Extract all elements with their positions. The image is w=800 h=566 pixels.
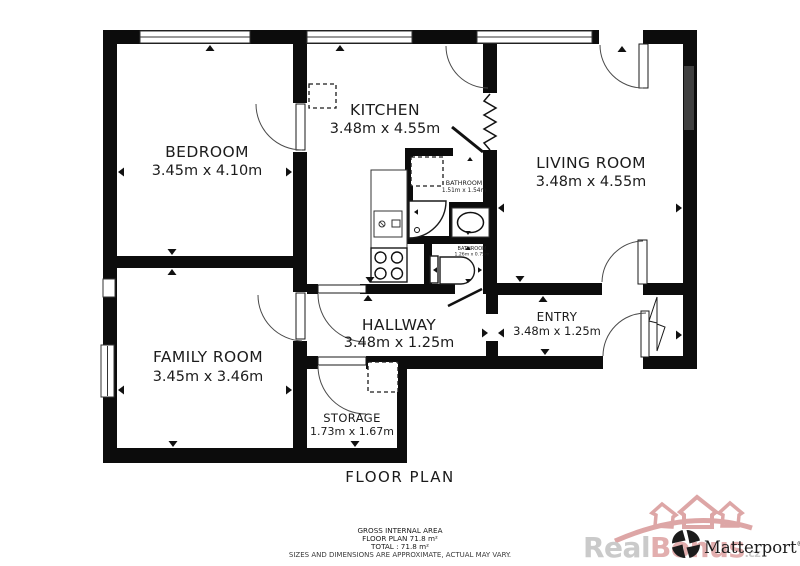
room-dims-storage: 1.73m x 1.67m — [310, 425, 394, 438]
kitchen-counter — [371, 170, 407, 248]
room-label-family-room: FAMILY ROOM — [153, 348, 263, 366]
dimension-arrow — [478, 267, 482, 273]
dimension-arrow — [351, 441, 360, 447]
dashed-fixture — [411, 157, 443, 186]
door-arc — [318, 366, 366, 414]
total-area: TOTAL : 71.8 m² — [370, 542, 429, 551]
room-dims-hallway: 3.48m x 1.25m — [344, 335, 455, 351]
dimension-arrow — [541, 349, 550, 355]
dimension-arrow — [676, 204, 682, 213]
dimension-arrow — [286, 386, 292, 395]
dimension-arrow — [539, 296, 548, 302]
dimension-arrow — [168, 269, 177, 275]
shower-icon — [409, 201, 446, 238]
dimension-arrow — [676, 331, 682, 340]
dimension-arrow — [336, 45, 345, 51]
door-leaf — [296, 104, 305, 150]
dimension-arrow — [498, 329, 504, 338]
dimension-arrow — [482, 329, 488, 338]
room-label-kitchen: KITCHEN — [350, 101, 420, 119]
door-arc — [603, 313, 646, 356]
dimension-arrow — [206, 45, 215, 51]
room-dims-family-room: 3.45m x 3.46m — [153, 369, 264, 385]
room-label-hallway: HALLWAY — [362, 316, 436, 334]
room-dims-bathroom: 1.51m x 1.54m — [442, 188, 487, 194]
room-label-living-room: LIVING ROOM — [536, 154, 646, 172]
door-leaf — [296, 293, 305, 339]
dimension-arrow — [118, 386, 124, 395]
room-label-bedroom: BEDROOM — [165, 143, 249, 161]
window — [140, 31, 250, 43]
dimension-arrow — [364, 295, 373, 301]
floor-plan-title: FLOOR PLAN — [345, 468, 454, 486]
matterport-wordmark: Matterport® — [704, 538, 800, 557]
dimension-arrow — [168, 249, 177, 255]
dimension-arrow — [169, 441, 178, 447]
dashed-fixture — [309, 84, 336, 108]
dimension-arrow — [286, 168, 292, 177]
dimension-arrow — [618, 46, 627, 52]
wall-niche — [103, 279, 115, 297]
room-label-storage: STORAGE — [323, 411, 381, 425]
stove-icon — [371, 248, 407, 282]
door-leaf — [318, 357, 366, 365]
door-leaf — [638, 240, 647, 284]
double-door — [649, 297, 665, 351]
disclaimer: SIZES AND DIMENSIONS ARE APPROXIMATE, AC… — [289, 551, 511, 559]
door-leaf — [639, 44, 648, 88]
room-label-bathroom: BATHROOM — [446, 180, 482, 187]
door-leaf — [641, 311, 649, 357]
room-dims-kitchen: 3.48m x 4.55m — [330, 121, 441, 137]
door-arc — [446, 46, 488, 88]
room-dims-entry: 3.48m x 1.25m — [513, 324, 601, 338]
window — [307, 31, 412, 43]
room-dims-bedroom: 3.45m x 4.10m — [152, 163, 263, 179]
dimension-arrow — [516, 276, 525, 282]
dimension-arrow — [118, 168, 124, 177]
zigzag-symbol — [483, 93, 497, 150]
window — [101, 345, 114, 397]
sink-icon — [452, 208, 489, 237]
dimension-arrow — [467, 157, 473, 161]
dimension-arrow — [498, 204, 504, 213]
dashed-fixture — [368, 362, 398, 392]
radiator — [684, 66, 694, 130]
floor-plan-canvas: BEDROOM 3.45m x 4.10m KITCHEN 3.48m x 4.… — [0, 0, 800, 566]
door-leaf — [318, 285, 366, 293]
door-arc — [602, 241, 643, 282]
room-dims-bathroom-small: 1.26m x 0.75m — [454, 252, 490, 258]
window — [477, 31, 592, 43]
room-dims-living-room: 3.48m x 4.55m — [536, 174, 647, 190]
room-label-entry: ENTRY — [537, 310, 578, 324]
room-label-bathroom-small: BATHROOM — [458, 246, 487, 252]
